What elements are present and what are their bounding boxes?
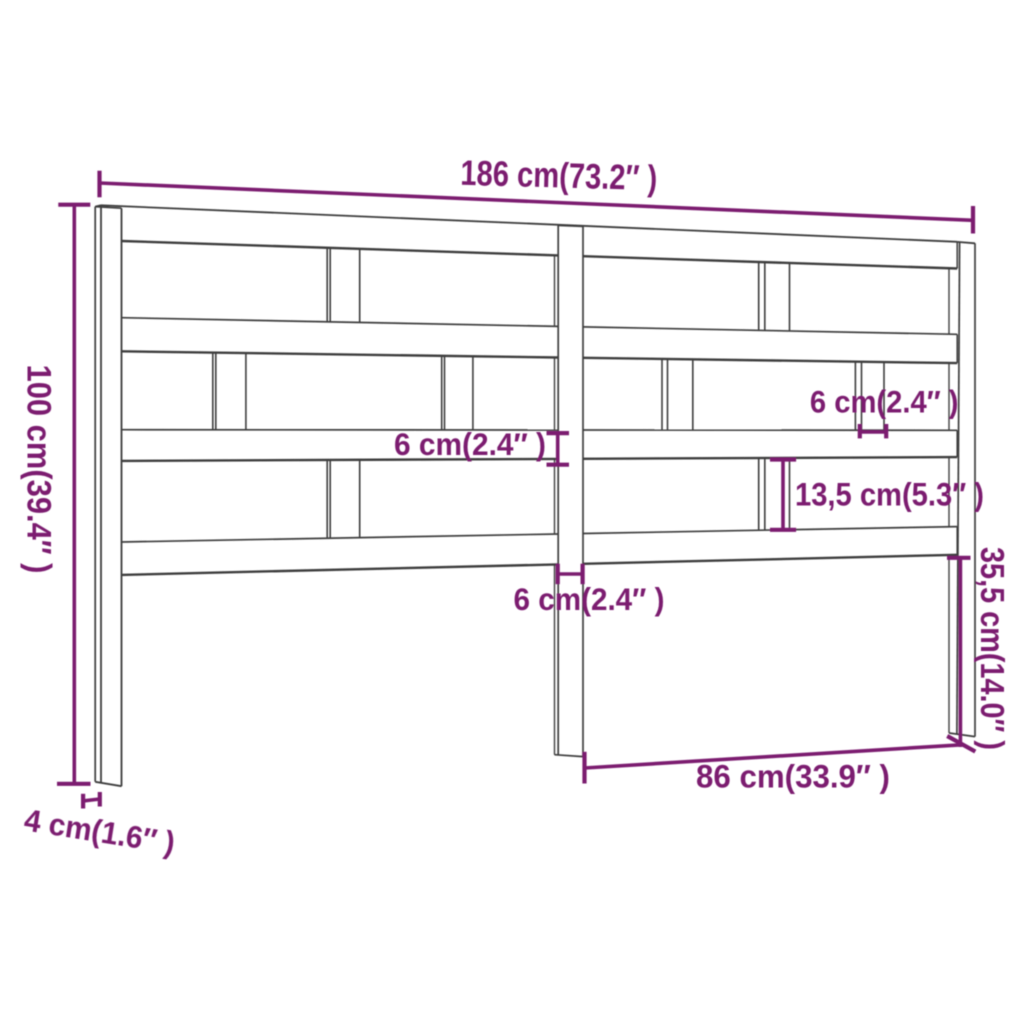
svg-text:100 cm(39.4″ ): 100 cm(39.4″ ) [20,365,58,574]
svg-text:186 cm(73.2″ ): 186 cm(73.2″ ) [460,153,658,198]
svg-text:13,5 cm(5.3″ ): 13,5 cm(5.3″ ) [795,477,984,513]
svg-text:35,5 cm(14.0″ ): 35,5 cm(14.0″ ) [974,547,1011,750]
svg-text:6 cm(2.4″ ): 6 cm(2.4″ ) [394,426,546,462]
svg-text:6 cm(2.4″ ): 6 cm(2.4″ ) [810,386,959,420]
svg-text:6 cm(2.4″ ): 6 cm(2.4″ ) [514,582,665,617]
svg-text:86 cm(33.9″ ): 86 cm(33.9″ ) [696,758,890,795]
